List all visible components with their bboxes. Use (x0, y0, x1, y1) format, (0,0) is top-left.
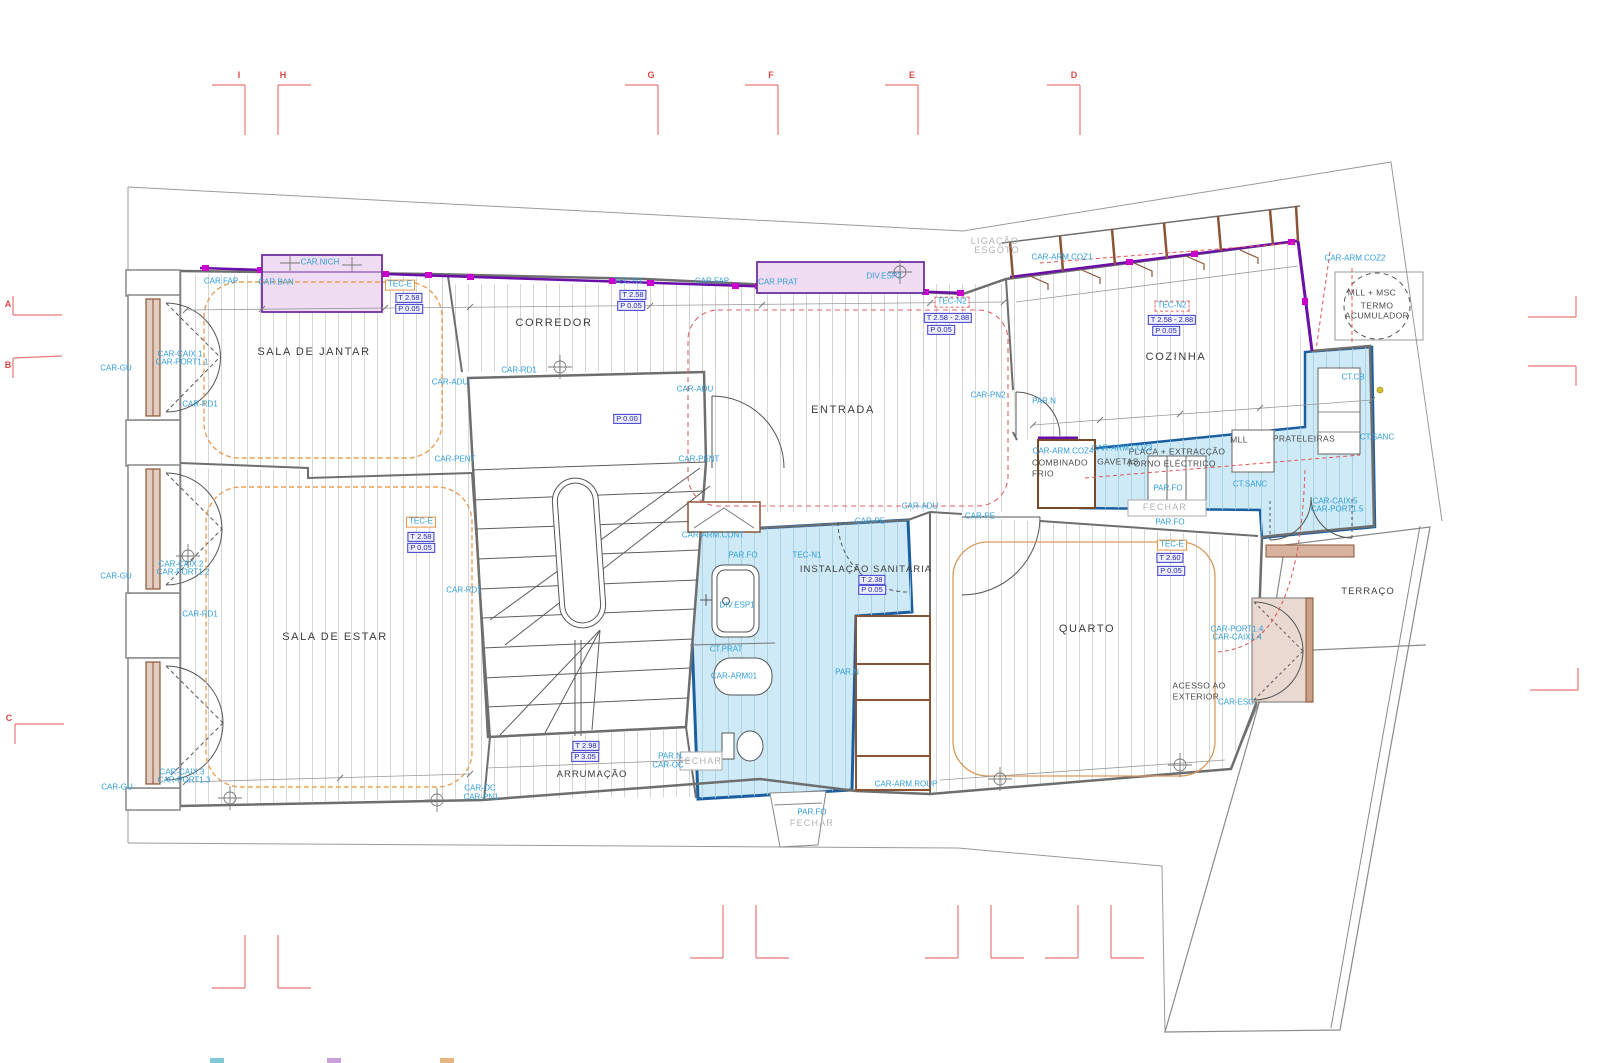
label-e: E (909, 71, 915, 81)
label-car-arm-cont: CAR-ARM.CONT (682, 532, 744, 541)
label-car-rd1: CAR-RD1 (501, 367, 537, 376)
label-p-0-05: P 0.05 (617, 301, 645, 311)
label-entrada: ENTRADA (811, 404, 875, 416)
label-t-2-60: T 2.60 (1156, 553, 1183, 563)
label-t-2-58-2-88: T 2.58 - 2.88 (924, 313, 972, 323)
label-acesso-ao: ACESSO AO (1172, 681, 1225, 690)
label-t-2-58: T 2.58 (619, 290, 646, 300)
label-a: A (5, 300, 12, 310)
label-d: D (1071, 71, 1078, 81)
label-ct-sanc: CT.SANC (1233, 481, 1267, 490)
label-par-fo: PAR.FO (797, 809, 826, 818)
label-car-pe: CAR-PE (965, 513, 995, 522)
label-h: H (280, 71, 287, 81)
label-car-adu: CAR-ADU (902, 503, 938, 512)
label-exterior: EXTERIOR (1173, 692, 1220, 701)
label-car-arm-coz2: CAR-ARM.COZ2 (1325, 255, 1386, 264)
label-p-0-00: P 0.00 (613, 414, 641, 424)
label-car-arm-roup: CAR-ARM.ROUP (875, 781, 938, 790)
label-esgoto: ESGOTO (974, 246, 1020, 256)
label-t-2-98: T 2.98 (572, 741, 599, 751)
label-car-pn2: CAR-PN2 (970, 392, 1005, 401)
label-tec-e: TEC-E (385, 280, 415, 291)
label-f: F (768, 71, 774, 81)
label-car-oc: CAR-OC (652, 762, 684, 771)
label-car-arm-coz4: CAR-ARM.COZ4 (1033, 448, 1094, 457)
floor-plan-canvas: SALA DE JANTARCORREDORENTRADACOZINHASALA… (0, 0, 1600, 1063)
label-par-n: PAR.N (835, 669, 859, 678)
label-car-port1-2: CAR-PORT1.2 (157, 569, 210, 578)
label-t-2-58-2-88: T 2.58 - 2.88 (1148, 315, 1196, 325)
label-termo: TERMO (1361, 301, 1394, 310)
label-fechar: FECHAR (1143, 503, 1187, 513)
label-tec-e: TEC-E (406, 517, 436, 528)
label-cozinha: COZINHA (1146, 351, 1207, 363)
label-car-port1-3: CAR-PORT1.3 (158, 777, 211, 786)
label-p-0-05: P 0.05 (395, 304, 423, 314)
label-p-0-05: P 0.05 (1157, 566, 1185, 576)
legend-chip-1 (327, 1058, 341, 1063)
label-ct-prat: CT.PRAT (710, 646, 743, 655)
labels-layer: SALA DE JANTARCORREDORENTRADACOZINHASALA… (0, 0, 1600, 1063)
label-car-rd1: CAR-RD1 (182, 611, 218, 620)
label-car-rd1: CAR-RD1 (446, 587, 482, 596)
legend-chip-0 (210, 1058, 224, 1063)
label-tec-n2: TEC-N2 (1155, 301, 1190, 312)
label-sala-de-jantar: SALA DE JANTAR (257, 346, 370, 358)
label-car-nich: CAR.NICH (301, 259, 340, 268)
label-i: I (238, 71, 241, 81)
label-t-2-58: T 2.58 (395, 293, 422, 303)
label-car-fap: CAR.FAP (695, 278, 729, 287)
label-ct-cb: CT.CB (1341, 374, 1364, 383)
label-car-adu: CAR-ADU (432, 379, 468, 388)
label-arruma-o: ARRUMAÇÃO (557, 770, 628, 780)
label-prateleiras: PRATELEIRAS (1273, 434, 1335, 443)
label-car-adu: CAR-ADU (677, 386, 713, 395)
label-frio: FRIO (1032, 469, 1054, 478)
label-g: G (647, 71, 654, 81)
label-p-0-05: P 0.05 (407, 543, 435, 553)
label-car-arm01: CAR-ARM01 (711, 673, 757, 682)
label-car-gu: CAR-GU (101, 784, 133, 793)
label-div-esp2: DIV.ESP2 (866, 273, 901, 282)
label-par-fo: PAR.FO (1155, 519, 1184, 528)
label-div-esp1: DIV.ESP1 (719, 602, 754, 611)
label-combinado: COMBINADO (1032, 458, 1088, 467)
label-fechar: FECHAR (678, 757, 722, 767)
label-t-2-58: T 2.58 (407, 532, 434, 542)
label-car-pn1: CAR-PN1 (463, 794, 498, 803)
label-tec-e: TEC-E (1157, 540, 1187, 551)
label-p-3-05: P 3.05 (571, 752, 599, 762)
label-car-port1-1: CAR-PORT1.1 (156, 359, 209, 368)
legend-chip-2 (440, 1058, 454, 1063)
label-terra-o: TERRAÇO (1341, 587, 1394, 597)
label-car-rd1: CAR-RD1 (182, 401, 218, 410)
label-quarto: QUARTO (1059, 623, 1115, 635)
label-par-fo: PAR.FO (1153, 485, 1182, 494)
label-car-port1-5: CAR-PORT1.5 (1311, 506, 1364, 515)
label-tec-n2: TEC-N2 (935, 297, 970, 308)
label-car-pent: CAR-PENT (435, 456, 476, 465)
label-p-0-05: P 0.05 (858, 585, 886, 595)
label-car-arm-coz1: CAR-ARM.COZ1 (1032, 254, 1093, 263)
label-car-ban: CAR.BAN (258, 279, 294, 288)
label-ct-sanc: CT.SANC (1360, 434, 1394, 443)
label-c: C (6, 714, 13, 724)
label-car-esc: CAR-ESC (1218, 699, 1254, 708)
label-forno-el-ctrico: FORNO ELÉCTRICO (1128, 459, 1216, 468)
label-car-pent: CAR-PENT (679, 456, 720, 465)
label-p-0-05: P 0.05 (1152, 326, 1180, 336)
label-mll: MLL (1230, 435, 1248, 444)
label-mll-msc: MLL + MSC (1348, 288, 1396, 297)
label-tec-n1: TEC-N1 (793, 552, 822, 561)
label-fechar: FECHAR (790, 819, 834, 829)
label-car-fap: CAR.FAP (204, 278, 238, 287)
label-car-pe: CAR-PE (855, 518, 885, 527)
label-tec-n1: TEC-N1 (614, 278, 643, 287)
label-t-2-38: T 2.38 (858, 575, 885, 585)
label-car-arm-coz3: CAR-ARM.COZ3 (1092, 445, 1153, 454)
label-car-gu: CAR-GU (100, 365, 132, 374)
label-car-gu: CAR-GU (100, 573, 132, 582)
label-car-caix1-4: CAR-CAIX1.4 (1212, 634, 1261, 643)
label-car-prat: CAR.PRAT (758, 279, 798, 288)
label-par-fo: PAR.FO (728, 552, 757, 561)
label-sala-de-estar: SALA DE ESTAR (282, 631, 388, 643)
label-b: B (5, 361, 12, 371)
label-corredor: CORREDOR (516, 317, 593, 329)
label-instala-o-sanit-ria: INSTALAÇÃO SANITÁRIA (800, 565, 932, 575)
label-par-n: PAR.N (1032, 398, 1056, 407)
label-p-0-05: P 0.05 (927, 325, 955, 335)
label-acumulador: ACUMULADOR (1345, 311, 1409, 320)
